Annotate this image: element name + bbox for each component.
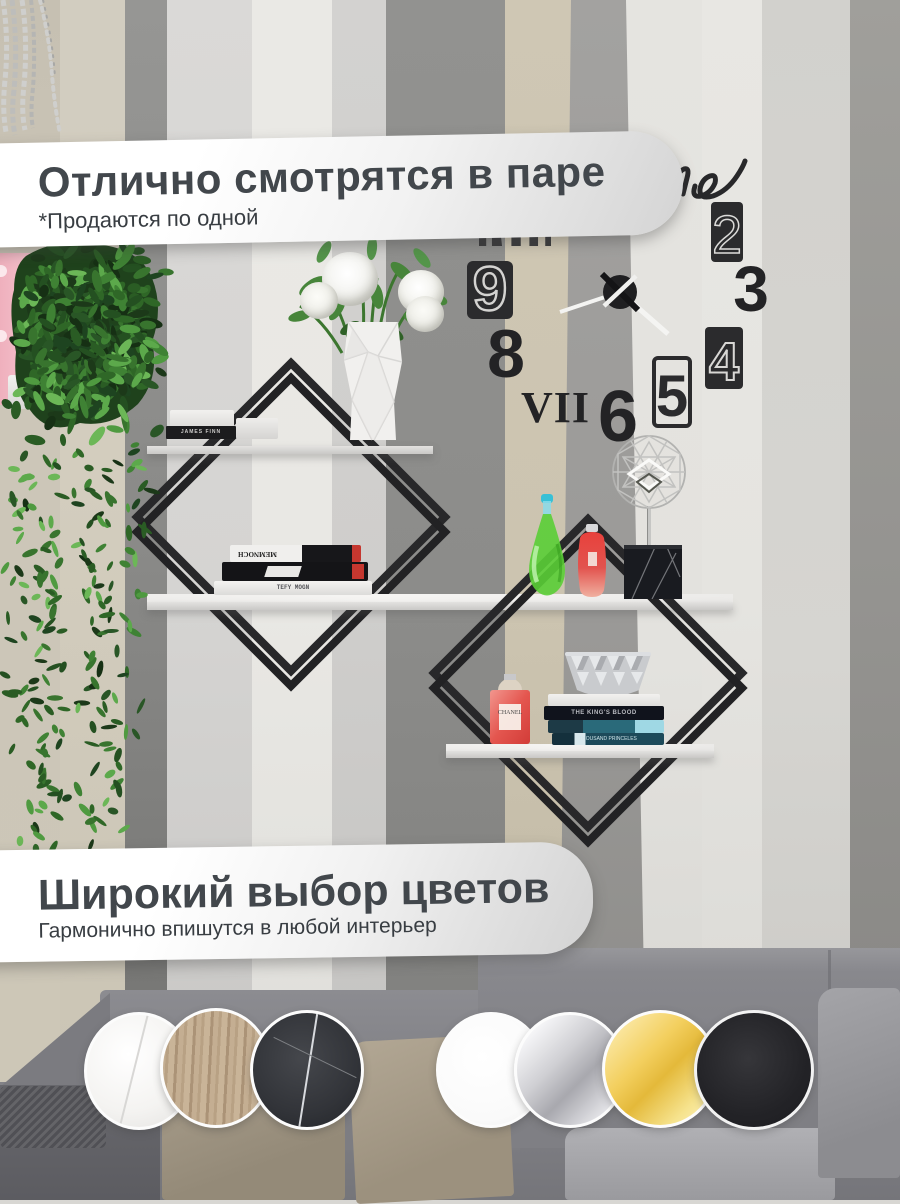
svg-text:4: 4 (709, 332, 739, 390)
svg-text:CHANEL: CHANEL (498, 710, 523, 716)
svg-text:5: 5 (656, 364, 688, 428)
svg-text:9: 9 (473, 260, 507, 320)
